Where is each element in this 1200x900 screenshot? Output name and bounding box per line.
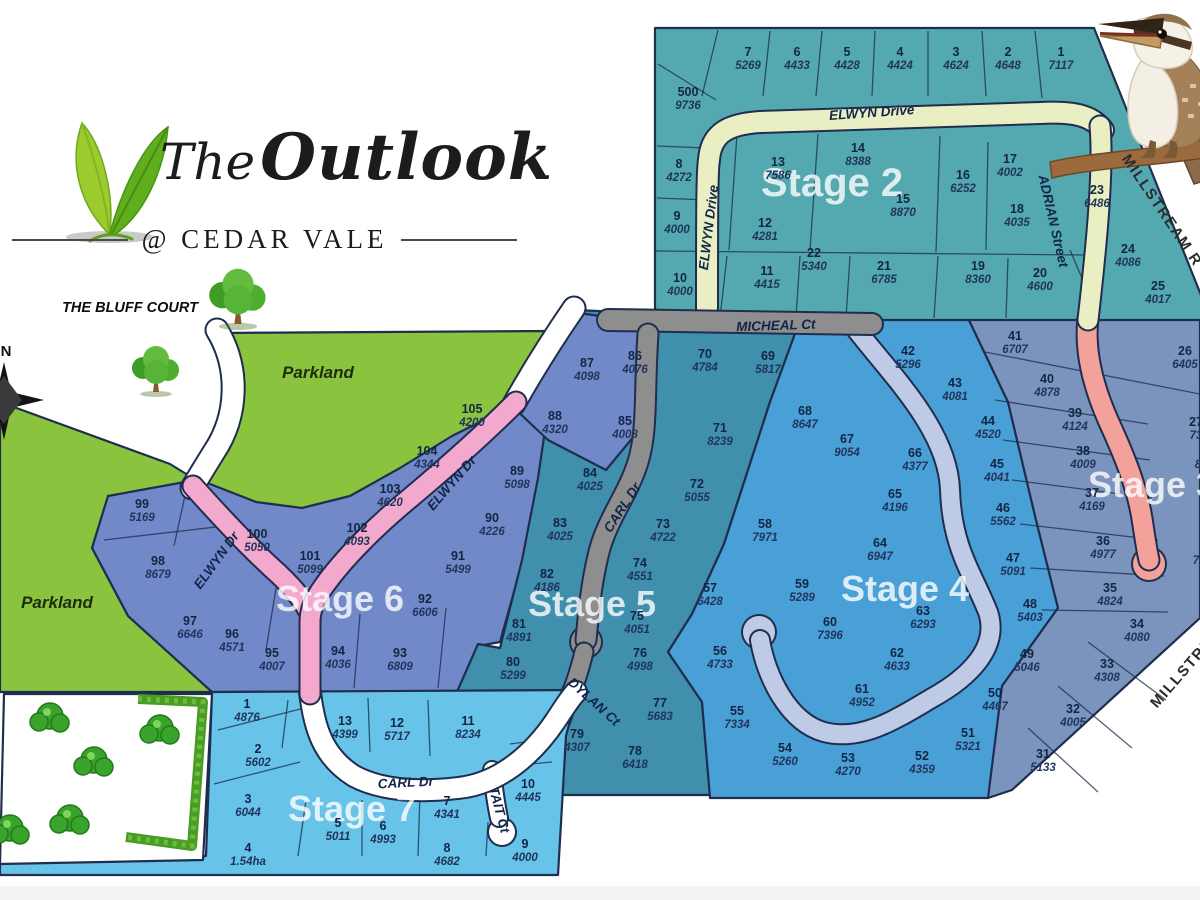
lot-area: 4600 <box>1026 281 1053 293</box>
lot-number: 82 <box>540 567 554 581</box>
lot-area: 6809 <box>387 661 413 673</box>
lot-stage-3-27: 2773 <box>1189 415 1200 442</box>
lot-number: 43 <box>948 376 962 390</box>
lot-area: 4169 <box>1078 501 1105 513</box>
lot-number: 4 <box>897 45 904 59</box>
lot-number: 90 <box>485 511 499 525</box>
lot-area: 4196 <box>881 502 908 514</box>
brand-subtitle: @ CEDAR VALE <box>128 224 402 255</box>
lot-number: 102 <box>347 521 368 535</box>
lot-stage-3-edge: 8 <box>1195 459 1200 471</box>
lot-area: 5299 <box>500 670 526 682</box>
lot-number: 9 <box>522 837 529 851</box>
lot-area: 4977 <box>1089 549 1116 561</box>
lot-area: 4036 <box>324 659 351 671</box>
lot-area: 4433 <box>783 60 810 72</box>
lot-number: 7 <box>745 45 752 59</box>
lot-area: 4076 <box>621 364 648 376</box>
lot-area: 4025 <box>576 481 603 493</box>
bush-icon <box>11 826 29 844</box>
lot-area: 8388 <box>845 156 871 168</box>
bush-icon <box>140 725 158 743</box>
lot-area: 6785 <box>871 274 897 286</box>
lot-area: 6418 <box>622 759 648 771</box>
lot-area: 6428 <box>697 596 723 608</box>
lot-area: 4007 <box>258 661 285 673</box>
lot-number: 89 <box>510 464 524 478</box>
bush-highlight <box>63 810 71 818</box>
lot-area: 7117 <box>1049 60 1074 72</box>
lot-number: 40 <box>1040 372 1054 386</box>
lot-area: 4080 <box>1123 632 1150 644</box>
lot-number: 7 <box>444 794 451 808</box>
lot-number: 93 <box>393 646 407 660</box>
lot-area: 4633 <box>883 661 910 673</box>
lot-number: 74 <box>633 556 647 570</box>
brand-name: Outlook <box>260 120 553 195</box>
lot-area: 5260 <box>772 756 798 768</box>
lot-area: 8870 <box>890 207 916 219</box>
lot-number: 83 <box>553 516 567 530</box>
lot-area: 4272 <box>665 172 692 184</box>
lot-number: 33 <box>1100 657 1114 671</box>
estate-map-poster: NStage 2Stage 3Stage 4Stage 5Stage 6Stag… <box>0 0 1200 900</box>
lot-area: 8360 <box>965 274 991 286</box>
lot-area: 5321 <box>955 741 981 753</box>
lot-area: 4878 <box>1033 387 1060 399</box>
lot-area: 4000 <box>511 852 538 864</box>
lot-number: 95 <box>265 646 279 660</box>
lot-number: 42 <box>901 344 915 358</box>
brand-subtitle-row: @ CEDAR VALE <box>12 224 517 255</box>
lot-area: 5499 <box>445 564 471 576</box>
lot-number: 59 <box>795 577 809 591</box>
lot-area: 6405 <box>1172 359 1198 371</box>
lot-stage-6-104: 1044344 <box>413 444 440 471</box>
lot-stage-3-edge: 7 <box>1193 555 1200 567</box>
parkland-upper-label: Parkland <box>282 363 354 382</box>
lot-number: 60 <box>823 615 837 629</box>
lot-number: 48 <box>1023 597 1037 611</box>
lot-number: 41 <box>1008 329 1022 343</box>
lot-area: 4005 <box>1059 717 1086 729</box>
lot-number: 103 <box>380 482 401 496</box>
lot-area: 4025 <box>546 531 573 543</box>
lot-number: 44 <box>981 414 995 428</box>
lot-area: 4344 <box>413 459 440 471</box>
lot-area: 73 <box>1190 430 1200 442</box>
lot-number: 8 <box>676 157 683 171</box>
lot-number: 91 <box>451 549 465 563</box>
lot-number: 5 <box>335 816 342 830</box>
lot-area: 8679 <box>145 569 171 581</box>
lot-number: 86 <box>628 349 642 363</box>
lot-area: 4186 <box>533 582 560 594</box>
lot-number: 55 <box>730 704 744 718</box>
lot-number: 50 <box>988 686 1002 700</box>
lot-stage-6-100: 1005050 <box>244 527 270 554</box>
lot-number: 78 <box>628 744 642 758</box>
lot-number: 77 <box>653 696 667 710</box>
lot-number: 80 <box>506 655 520 669</box>
stage-label-stage-4: Stage 4 <box>841 568 969 609</box>
lot-number: 15 <box>896 192 910 206</box>
lot-area: 4824 <box>1096 596 1123 608</box>
lot-area: 4307 <box>563 742 590 754</box>
lot-number: 32 <box>1066 702 1080 716</box>
lot-area: 7334 <box>724 719 750 731</box>
lot-area: 4017 <box>1144 294 1171 306</box>
lot-area: 7396 <box>817 630 843 642</box>
lot-number: 76 <box>633 646 647 660</box>
lot-number: 12 <box>758 216 772 230</box>
lot-area: 4571 <box>218 642 245 654</box>
bush-highlight <box>153 720 161 728</box>
lot-area: 4098 <box>573 371 600 383</box>
lot-area: 7586 <box>765 170 791 182</box>
lot-number: 12 <box>390 716 404 730</box>
lot-area: 5403 <box>1017 612 1043 624</box>
lot-number: 10 <box>521 777 535 791</box>
lot-number: 1 <box>1058 45 1065 59</box>
lot-number: 1 <box>244 697 251 711</box>
lot-area: 4051 <box>623 624 650 636</box>
lot-number: 63 <box>916 604 930 618</box>
lot-area: 6646 <box>177 629 203 641</box>
lot-number: 81 <box>512 617 526 631</box>
lot-number: 69 <box>761 349 775 363</box>
lot-number: 24 <box>1121 242 1135 256</box>
lot-area: 4041 <box>983 472 1010 484</box>
lot-area: 4341 <box>433 809 460 821</box>
bush-icon <box>30 713 48 731</box>
lot-area: 4281 <box>751 231 778 243</box>
lot-number: 104 <box>417 444 438 458</box>
lot-area: 5091 <box>1000 566 1026 578</box>
lot-number: 92 <box>418 592 432 606</box>
stage-label-stage-6: Stage 6 <box>276 578 404 619</box>
lot-area: 4200 <box>458 417 485 429</box>
lot-number: 35 <box>1103 581 1117 595</box>
bush-icon <box>51 714 69 732</box>
lot-number: 14 <box>851 141 865 155</box>
lot-area: 4428 <box>833 60 860 72</box>
lot-area: 5602 <box>245 757 271 769</box>
lot-stage-6-102: 1024093 <box>343 521 370 548</box>
lot-number: 49 <box>1020 647 1034 661</box>
lot-number: 9 <box>674 209 681 223</box>
lot-area: 4377 <box>901 461 928 473</box>
lot-number: 68 <box>798 404 812 418</box>
lot-area: 4270 <box>834 766 861 778</box>
lot-number: 52 <box>915 749 929 763</box>
lot-area: 4226 <box>478 526 505 538</box>
lot-number: 6 <box>380 819 387 833</box>
lot-number: 46 <box>996 501 1010 515</box>
bush-highlight <box>3 820 11 828</box>
lot-area: 4682 <box>433 856 460 868</box>
lot-area: 5098 <box>504 479 530 491</box>
logo: The Outlook @ CEDAR VALE <box>12 100 532 260</box>
brand-the: The <box>160 133 255 191</box>
lot-area: 5562 <box>990 516 1016 528</box>
lot-area: 5055 <box>684 492 710 504</box>
lot-area: 6252 <box>950 183 976 195</box>
lot-number: 85 <box>618 414 632 428</box>
lot-area: 5011 <box>326 831 351 843</box>
road-label-micheal-ct: MICHEAL Ct <box>736 317 816 335</box>
lot-number: 36 <box>1096 534 1110 548</box>
lot-area: 6947 <box>867 551 893 563</box>
lot-number: 38 <box>1076 444 1090 458</box>
lot-area: 4086 <box>1114 257 1141 269</box>
lot-number: 57 <box>703 581 717 595</box>
lot-area: 5099 <box>297 564 323 576</box>
lot-area: 5289 <box>789 592 815 604</box>
lot-number: 73 <box>656 517 670 531</box>
lot-area: 5683 <box>647 711 673 723</box>
subtitle-rule-right <box>401 239 517 241</box>
lot-area: 5046 <box>1014 662 1040 674</box>
lot-number: 23 <box>1090 183 1104 197</box>
lot-number: 17 <box>1003 152 1017 166</box>
compass-north-label: N <box>1 343 12 360</box>
lot-area: 4876 <box>233 712 260 724</box>
lot-area: 6044 <box>235 807 261 819</box>
lot-number: 20 <box>1033 266 1047 280</box>
lot-number: 34 <box>1130 617 1144 631</box>
lot-number: 11 <box>760 264 773 278</box>
lot-area: 8 <box>1195 459 1200 471</box>
bush-highlight <box>87 752 95 760</box>
lot-number: 8 <box>444 841 451 855</box>
lot-number: 39 <box>1068 406 1082 420</box>
lot-area: 4998 <box>626 661 653 673</box>
lot-number: 25 <box>1151 279 1165 293</box>
lot-number: 22 <box>807 246 821 260</box>
lot-area: 5817 <box>755 364 781 376</box>
lot-stage-6-103: 1034620 <box>376 482 403 509</box>
lot-number: 3 <box>245 792 252 806</box>
lot-area: 4648 <box>994 60 1021 72</box>
lot-area: 4399 <box>331 729 358 741</box>
bush-highlight <box>43 708 51 716</box>
lot-number: 64 <box>873 536 887 550</box>
page-bottom-strip <box>0 886 1200 900</box>
lot-number: 100 <box>247 527 268 541</box>
lot-number: 94 <box>331 644 345 658</box>
lot-area: 5169 <box>129 512 155 524</box>
lot-number: 27 <box>1189 415 1200 429</box>
lot-number: 84 <box>583 466 597 480</box>
lot-area: 4891 <box>505 632 532 644</box>
lot-area: 4009 <box>1069 459 1096 471</box>
lot-number: 37 <box>1085 486 1099 500</box>
lot-area: 4733 <box>706 659 733 671</box>
lot-number: 45 <box>990 457 1004 471</box>
lot-number: 66 <box>908 446 922 460</box>
lot-number: 47 <box>1006 551 1020 565</box>
lot-area: 5296 <box>895 359 921 371</box>
lot-number: 96 <box>225 627 239 641</box>
bush-icon <box>74 757 92 775</box>
lot-number: 79 <box>570 727 584 741</box>
lot-number: 99 <box>135 497 149 511</box>
lot-number: 65 <box>888 487 902 501</box>
lot-area: 4993 <box>369 834 396 846</box>
lot-area: 4620 <box>376 497 403 509</box>
lot-area: 7 <box>1193 555 1200 567</box>
lot-number: 75 <box>630 609 644 623</box>
lot-area: 4424 <box>886 60 913 72</box>
lot-area: 4624 <box>942 60 969 72</box>
lot-stage-6-101: 1015099 <box>297 549 323 576</box>
stage-label-stage-7: Stage 7 <box>288 788 416 829</box>
lot-area: 8239 <box>707 436 733 448</box>
lot-area: 4308 <box>1093 672 1120 684</box>
lot-number: 13 <box>338 714 352 728</box>
lot-number: 54 <box>778 741 792 755</box>
lot-area: 6606 <box>412 607 438 619</box>
lot-area: 4000 <box>663 224 690 236</box>
lot-area: 4722 <box>649 532 676 544</box>
brand-title: The Outlook <box>160 120 553 195</box>
lot-number: 31 <box>1036 747 1050 761</box>
bush-icon <box>161 726 179 744</box>
lot-area: 6486 <box>1084 198 1110 210</box>
lot-number: 70 <box>698 347 712 361</box>
lot-area: 4093 <box>343 536 370 548</box>
lot-area: 5340 <box>801 261 827 273</box>
lot-area: 4000 <box>666 286 693 298</box>
lot-area: 1.54ha <box>230 856 266 868</box>
lot-area: 4081 <box>941 391 968 403</box>
lot-area: 4551 <box>626 571 653 583</box>
lot-area: 4035 <box>1003 217 1030 229</box>
lot-number: 53 <box>841 751 855 765</box>
lot-number: 105 <box>462 402 483 416</box>
lot-number: 62 <box>890 646 904 660</box>
lot-area: 6293 <box>910 619 936 631</box>
lot-number: 18 <box>1010 202 1024 216</box>
lot-area: 5269 <box>735 60 761 72</box>
lot-number: 2 <box>1005 45 1012 59</box>
stage-label-stage-3: Stage 3 <box>1088 464 1200 505</box>
lot-area: 7971 <box>752 532 778 544</box>
lot-number: 51 <box>961 726 975 740</box>
lot-number: 56 <box>713 644 727 658</box>
bush-icon <box>50 815 68 833</box>
lot-area: 9054 <box>834 447 860 459</box>
lot-area: 5133 <box>1030 762 1056 774</box>
tree-icon <box>132 346 179 397</box>
lot-number: 6 <box>794 45 801 59</box>
lot-area: 6707 <box>1002 344 1028 356</box>
lot-area: 8234 <box>455 729 481 741</box>
lot-number: 10 <box>673 271 687 285</box>
lot-number: 98 <box>151 554 165 568</box>
lot-number: 13 <box>771 155 785 169</box>
lot-number: 97 <box>183 614 197 628</box>
lot-stage-2-500: 5009736 <box>675 85 701 112</box>
road-label-carl-dr-south: CARL Dr <box>377 774 434 792</box>
lot-number: 5 <box>844 45 851 59</box>
subtitle-rule-left <box>12 239 128 241</box>
lot-number: 500 <box>678 85 699 99</box>
lot-number: 58 <box>758 517 772 531</box>
parkland-left-label: Parkland <box>21 593 93 612</box>
lot-stage-6-105: 1054200 <box>458 402 485 429</box>
lot-area: 4415 <box>753 279 780 291</box>
lot-area: 4359 <box>908 764 935 776</box>
lot-number: 21 <box>877 259 891 273</box>
lot-area: 4008 <box>611 429 638 441</box>
lot-number: 61 <box>855 682 869 696</box>
lot-area: 4467 <box>981 701 1008 713</box>
lot-number: 11 <box>461 714 474 728</box>
lot-number: 16 <box>956 168 970 182</box>
lot-area: 4002 <box>996 167 1023 179</box>
lot-area: 4784 <box>691 362 718 374</box>
lot-area: 4520 <box>974 429 1001 441</box>
lot-number: 71 <box>713 421 727 435</box>
bush-icon <box>71 816 89 834</box>
lot-area: 5050 <box>244 542 270 554</box>
lot-area: 4952 <box>848 697 875 709</box>
bluff-court-label: THE BLUFF COURT <box>62 300 199 316</box>
lot-number: 87 <box>580 356 594 370</box>
lot-area: 8647 <box>792 419 818 431</box>
lot-number: 26 <box>1178 344 1192 358</box>
lot-number: 101 <box>300 549 321 563</box>
lot-area: 4320 <box>541 424 568 436</box>
lot-area: 9736 <box>675 100 701 112</box>
lot-number: 4 <box>245 841 252 855</box>
lot-number: 67 <box>840 432 854 446</box>
lot-area: 5717 <box>384 731 410 743</box>
lot-area: 4124 <box>1061 421 1088 433</box>
lot-number: 72 <box>690 477 704 491</box>
lot-number: 19 <box>971 259 985 273</box>
lot-area: 4445 <box>514 792 541 804</box>
lot-number: 3 <box>953 45 960 59</box>
lot-number: 2 <box>255 742 262 756</box>
bush-icon <box>95 758 113 776</box>
lot-number: 88 <box>548 409 562 423</box>
